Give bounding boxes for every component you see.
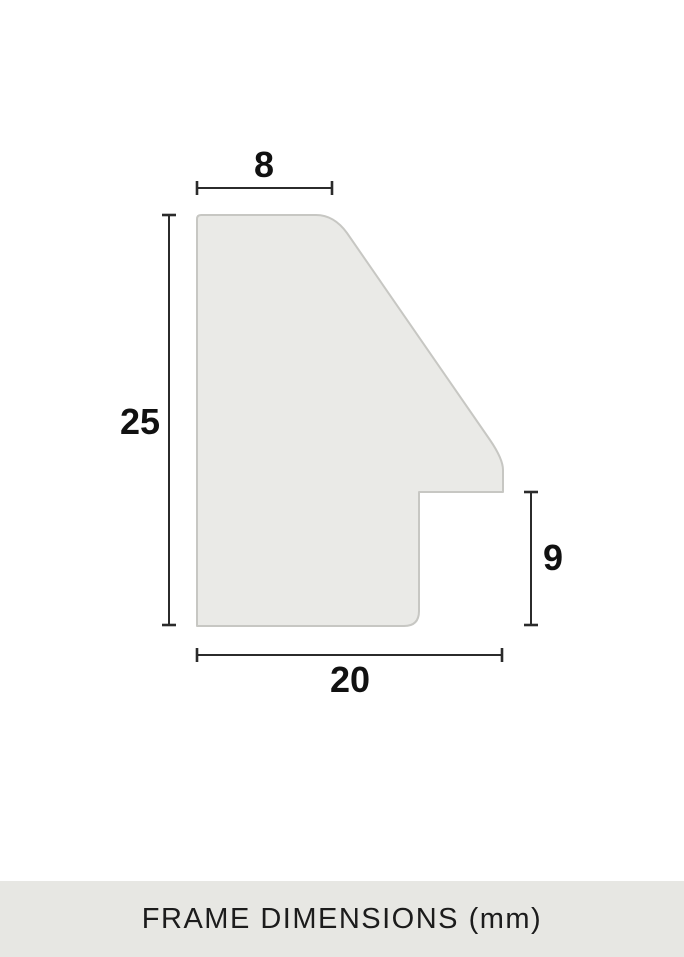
dim-top-width-label: 8	[254, 144, 274, 185]
frame-profile-shape	[197, 215, 503, 626]
dim-overall-width: 20	[197, 648, 502, 700]
frame-dimensions-figure: 8 25 9 20 FRAME DIMENSIONS (mm)	[0, 0, 684, 957]
dim-overall-height: 25	[120, 215, 176, 625]
caption-text: FRAME DIMENSIONS (mm)	[142, 903, 542, 936]
dim-overall-width-label: 20	[330, 659, 370, 700]
frame-profile-diagram: 8 25 9 20	[0, 0, 684, 881]
dim-top-width: 8	[197, 144, 332, 195]
caption-bar: FRAME DIMENSIONS (mm)	[0, 881, 684, 957]
dim-rabbet-height-label: 9	[543, 537, 563, 578]
dim-overall-height-label: 25	[120, 401, 160, 442]
dim-rabbet-height: 9	[524, 492, 563, 625]
